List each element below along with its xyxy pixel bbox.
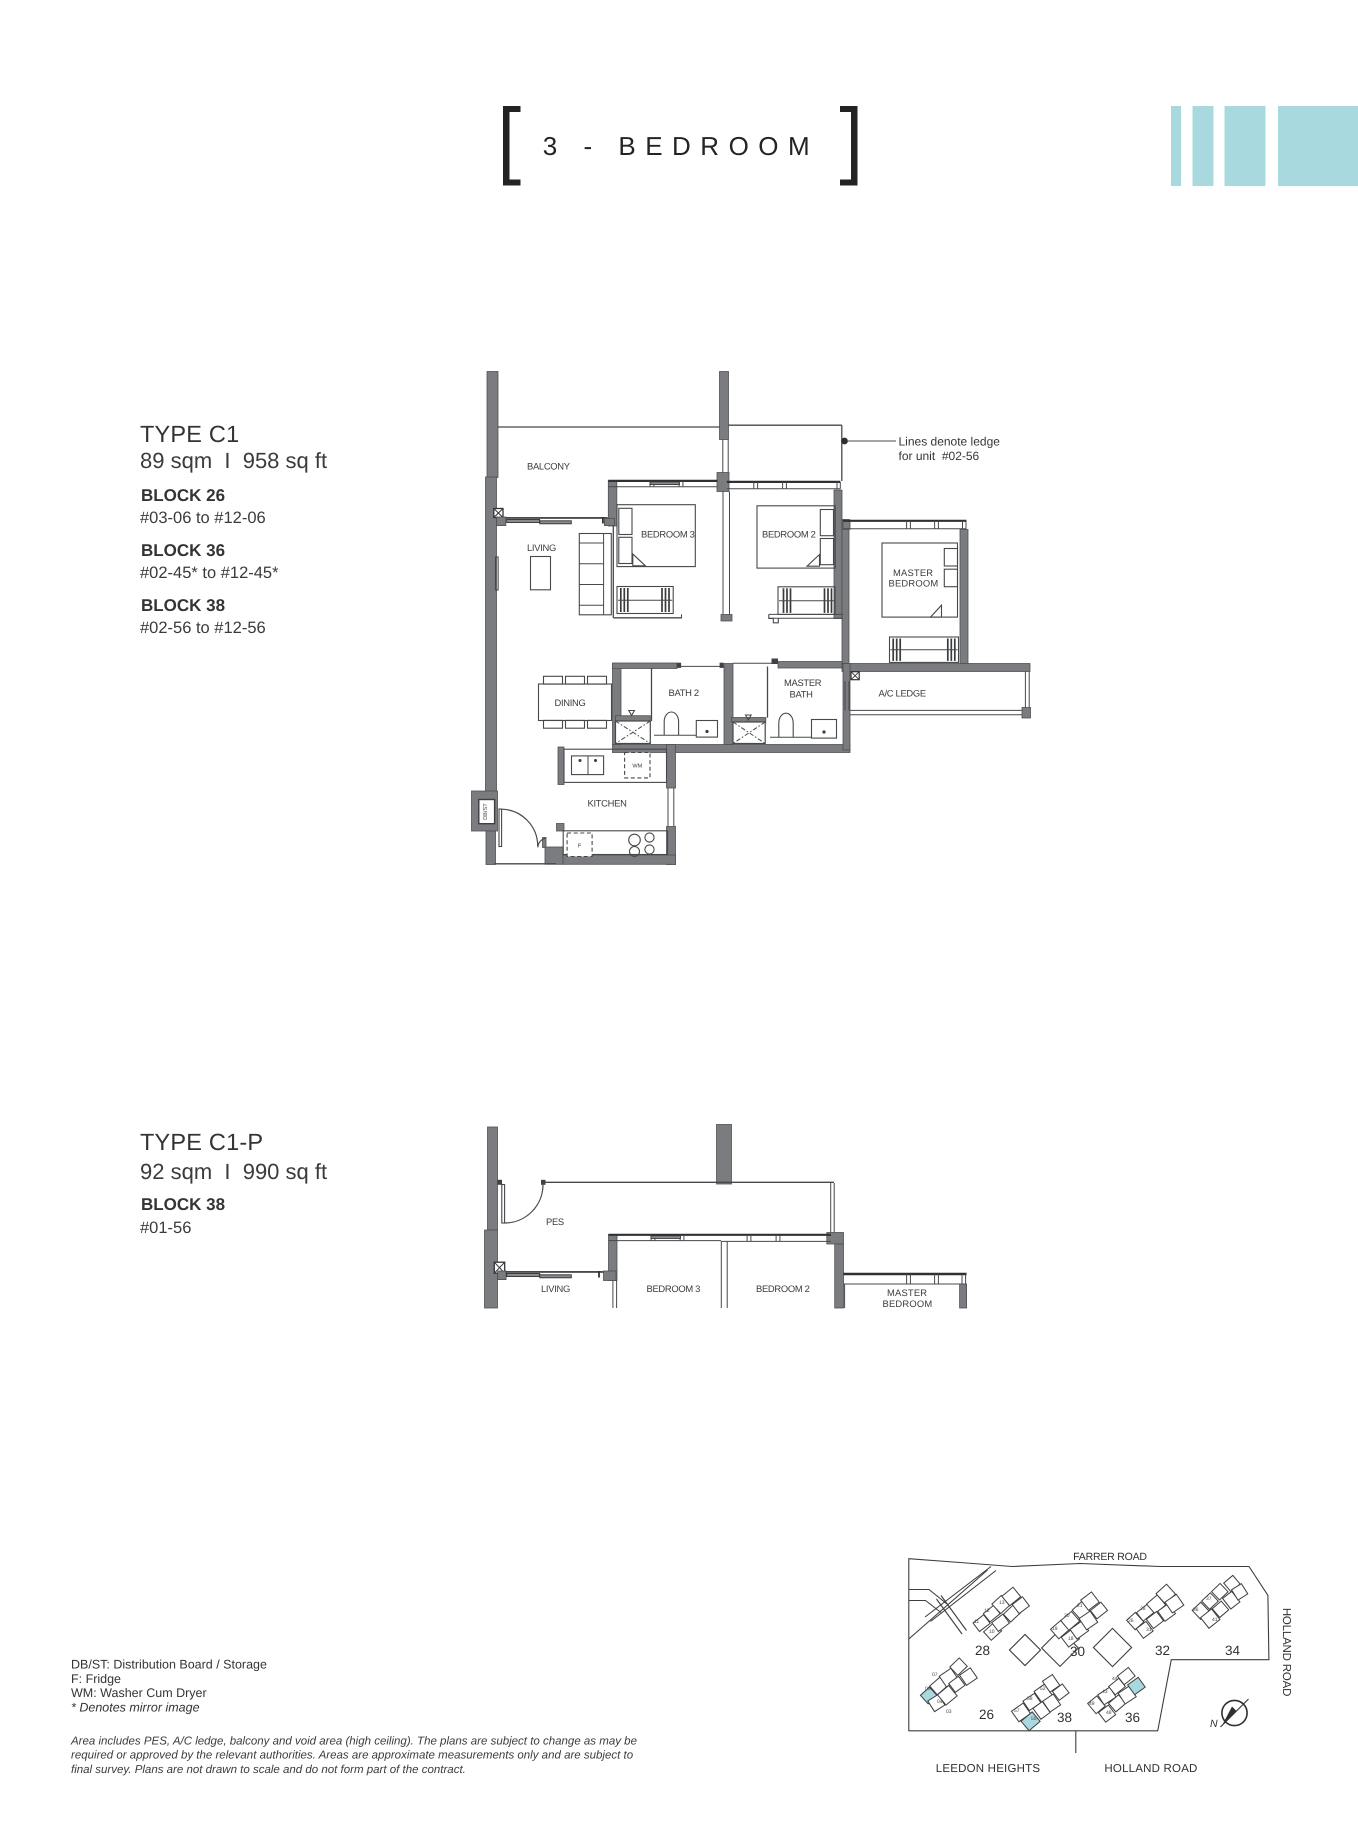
svg-text:for unit #02-56: for unit #02-56	[899, 449, 980, 463]
svg-text:KITCHEN: KITCHEN	[588, 798, 627, 809]
svg-text:BLOCK 36: BLOCK 36	[141, 541, 225, 560]
svg-text:13: 13	[999, 1600, 1005, 1606]
svg-text:58: 58	[1027, 1696, 1033, 1702]
svg-text:HOLLAND ROAD: HOLLAND ROAD	[1104, 1763, 1197, 1775]
svg-text:WM: Washer Cum Dryer: WM: Washer Cum Dryer	[71, 1686, 207, 1700]
svg-text:#03-06 to #12-06: #03-06 to #12-06	[140, 509, 266, 527]
svg-text:required or approved by the re: required or approved by the relevant aut…	[71, 1750, 634, 1762]
svg-text:PES: PES	[546, 1216, 564, 1227]
svg-text:F: Fridge: F: Fridge	[71, 1672, 121, 1686]
svg-text:04: 04	[937, 1699, 943, 1705]
svg-text:07: 07	[932, 1672, 938, 1678]
svg-text:BEDROOM 3: BEDROOM 3	[647, 1283, 701, 1294]
svg-text:A/C LEDGE: A/C LEDGE	[879, 688, 926, 699]
svg-text:TYPE C1: TYPE C1	[140, 421, 239, 447]
svg-text:03: 03	[946, 1709, 952, 1715]
svg-text:LIVING: LIVING	[527, 542, 556, 553]
svg-text:BLOCK 38: BLOCK 38	[141, 1195, 225, 1214]
svg-text:DB/ST: Distribution Board / St: DB/ST: Distribution Board / Storage	[71, 1658, 267, 1672]
svg-text:36: 36	[1193, 1607, 1199, 1613]
svg-text:DINING: DINING	[555, 697, 586, 708]
svg-text:06: 06	[925, 1686, 931, 1692]
svg-text:LIVING: LIVING	[541, 1283, 570, 1294]
svg-text:28: 28	[1140, 1606, 1146, 1612]
svg-text:BALCONY: BALCONY	[527, 461, 571, 472]
svg-text:TYPE C1-P: TYPE C1-P	[140, 1129, 263, 1155]
svg-text:31: 31	[1146, 1627, 1152, 1633]
svg-text:36: 36	[1125, 1710, 1140, 1725]
svg-text:26: 26	[979, 1707, 994, 1722]
svg-text:32: 32	[1155, 1643, 1170, 1658]
svg-text:LEEDON HEIGHTS: LEEDON HEIGHTS	[936, 1763, 1041, 1775]
svg-text:MASTER: MASTER	[784, 677, 822, 688]
svg-text:WM: WM	[632, 764, 642, 770]
svg-text:BEDROOM: BEDROOM	[883, 1298, 933, 1309]
svg-text:Area includes PES, A/C ledge,: Area includes PES, A/C ledge, balcony an…	[70, 1736, 637, 1748]
svg-text:BATH: BATH	[790, 689, 813, 700]
svg-text:19: 19	[1052, 1626, 1058, 1632]
svg-text:11: 11	[974, 1619, 979, 1625]
svg-text:89 sqm I 958 sq ft: 89 sqm I 958 sq ft	[140, 448, 327, 473]
svg-text:57: 57	[1014, 1708, 1020, 1714]
svg-text:55: 55	[1031, 1716, 1037, 1722]
svg-text:HOLLAND ROAD: HOLLAND ROAD	[1280, 1608, 1292, 1696]
svg-text:12: 12	[984, 1608, 990, 1614]
svg-text:BATH 2: BATH 2	[669, 687, 699, 698]
svg-text:BEDROOM: BEDROOM	[889, 578, 939, 589]
svg-text:21: 21	[1077, 1603, 1083, 1609]
svg-text:38: 38	[1057, 1710, 1072, 1725]
svg-text:BEDROOM 2: BEDROOM 2	[756, 1283, 810, 1294]
svg-text:43: 43	[1102, 1689, 1108, 1695]
svg-text:* Denotes mirror image: * Denotes mirror image	[71, 1701, 200, 1715]
svg-text:10: 10	[989, 1629, 995, 1635]
svg-text:DB/ST: DB/ST	[482, 803, 489, 820]
svg-text:18: 18	[1068, 1636, 1074, 1642]
svg-text:48: 48	[1106, 1710, 1112, 1716]
svg-text:44: 44	[1112, 1676, 1118, 1682]
svg-text:N: N	[1210, 1718, 1218, 1730]
svg-text:3 - BEDROOM: 3 - BEDROOM	[543, 131, 819, 161]
svg-text:92 sqm I 990 sq ft: 92 sqm I 990 sq ft	[140, 1159, 327, 1184]
svg-text:20: 20	[1064, 1613, 1070, 1619]
svg-text:41: 41	[1212, 1617, 1218, 1623]
svg-text:BLOCK 38: BLOCK 38	[141, 596, 225, 615]
svg-text:52: 52	[1040, 1686, 1046, 1692]
svg-text:F: F	[578, 843, 582, 849]
svg-text:MASTER: MASTER	[893, 567, 933, 578]
svg-text:#02-56 to #12-56: #02-56 to #12-56	[140, 619, 266, 637]
svg-text:BLOCK 26: BLOCK 26	[141, 486, 225, 505]
svg-text:BEDROOM 2: BEDROOM 2	[762, 529, 816, 540]
svg-text:MASTER: MASTER	[887, 1287, 927, 1298]
svg-text:26: 26	[1128, 1618, 1134, 1624]
svg-text:final survey. Plans are not dr: final survey. Plans are not drawn to sca…	[71, 1764, 466, 1776]
svg-text:Lines denote ledge: Lines denote ledge	[899, 435, 1001, 449]
svg-text:30: 30	[1070, 1644, 1085, 1659]
svg-text:49: 49	[1089, 1701, 1095, 1707]
svg-text:34: 34	[1225, 1643, 1241, 1658]
svg-text:FARRER ROAD: FARRER ROAD	[1073, 1551, 1147, 1563]
svg-text:BEDROOM 3: BEDROOM 3	[641, 529, 695, 540]
svg-text:37: 37	[1206, 1596, 1212, 1602]
svg-text:#02-45* to #12-45*: #02-45* to #12-45*	[140, 564, 279, 582]
svg-text:#01-56: #01-56	[140, 1219, 191, 1237]
svg-text:28: 28	[975, 1643, 990, 1658]
